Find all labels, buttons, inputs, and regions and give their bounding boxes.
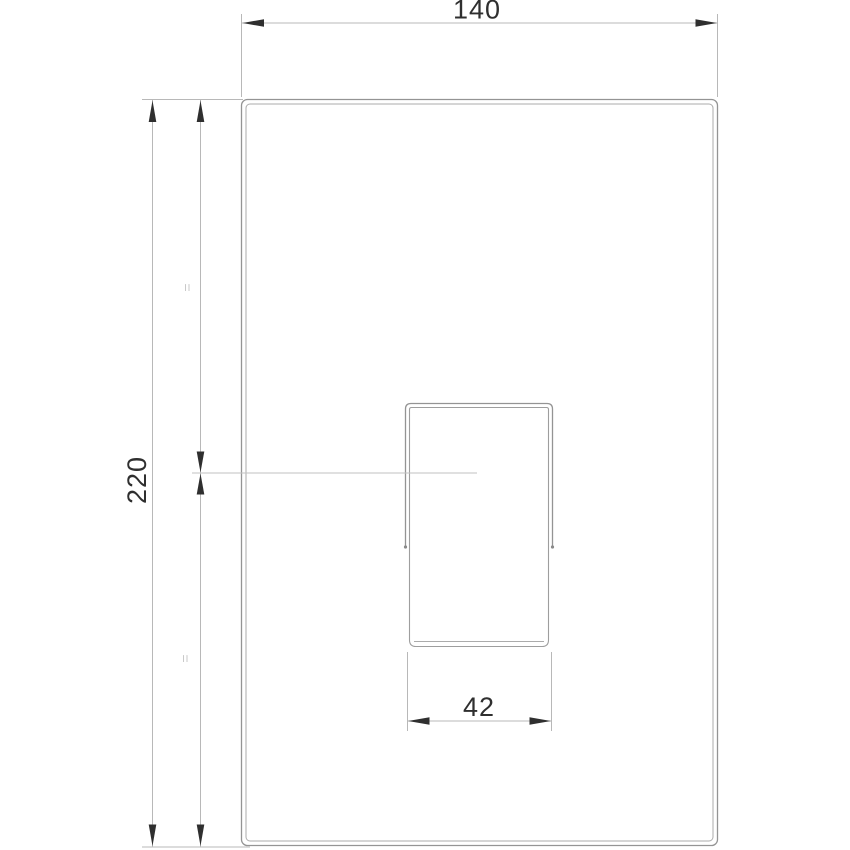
arrowhead-right [696, 19, 718, 27]
arrowhead-right [530, 717, 552, 725]
dim-label-width: 140 [453, 0, 501, 25]
arrowhead-mid-up [197, 474, 205, 495]
arrowhead-mid-down [197, 452, 205, 473]
equal-spacing-mark-top: = [179, 282, 195, 291]
dimension-top-width: 140 [242, 0, 718, 97]
handle-outline [404, 404, 554, 647]
arrowhead-bottom [149, 825, 157, 847]
sleeve-end-right-dot [551, 545, 554, 548]
dim-label-height: 220 [122, 456, 152, 504]
arrowhead-left [408, 717, 430, 725]
sleeve-end-left-dot [404, 545, 407, 548]
dimension-center-equal: = = [177, 100, 477, 847]
dimension-handle-width: 42 [408, 652, 552, 731]
technical-drawing: 140 220 = = 42 [0, 0, 850, 850]
handle-sleeve-outer [406, 404, 553, 548]
arrowhead-left [243, 19, 265, 27]
handle-body [410, 408, 549, 647]
arrowhead-top [197, 101, 205, 123]
drawing-canvas: 140 220 = = 42 [0, 0, 850, 850]
dim-label-handle-width: 42 [463, 692, 495, 722]
equal-spacing-mark-bottom: = [177, 653, 193, 662]
arrowhead-top [149, 101, 157, 123]
arrowhead-bottom [197, 825, 205, 847]
